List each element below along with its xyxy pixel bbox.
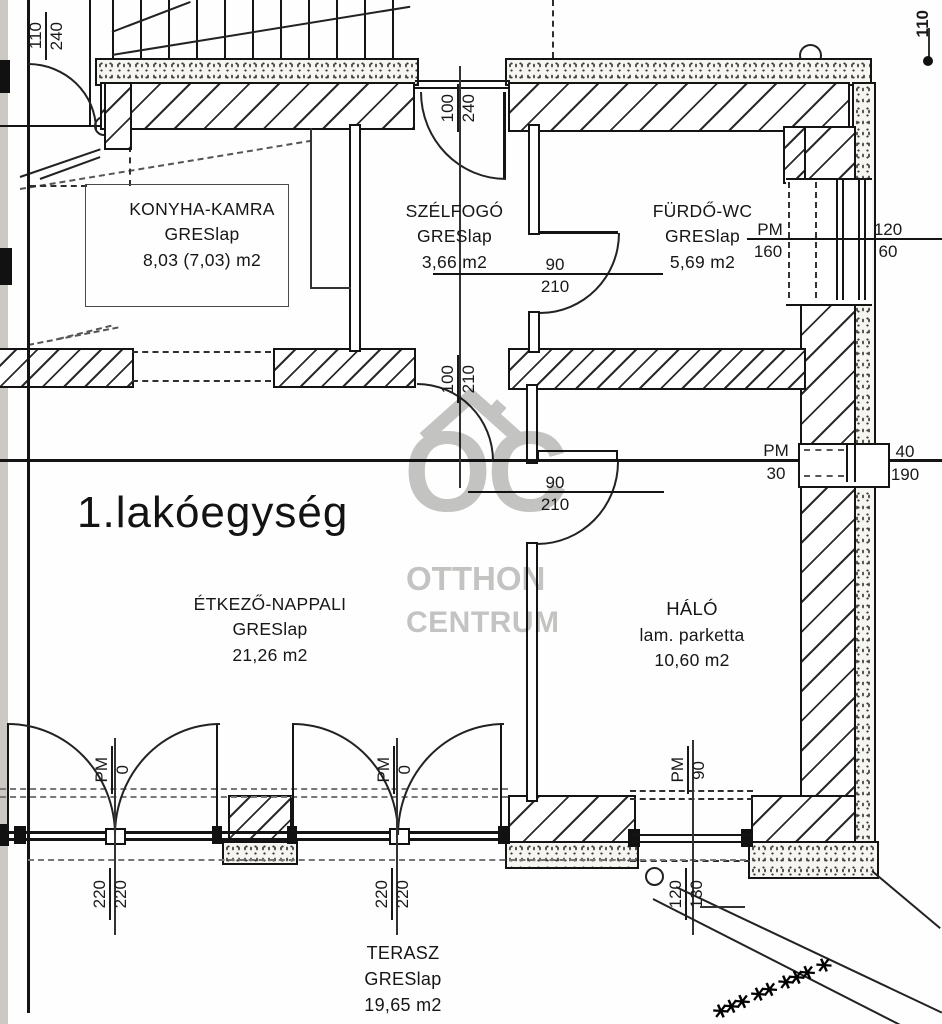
wall-top-left-corner: [104, 82, 132, 150]
room-label-konyha: KONYHA-KAMRA GRESlap 8,03 (7,03) m2: [98, 197, 306, 273]
stair-dash-line: [552, 0, 554, 58]
wall-bottom-right-of-window: [751, 795, 856, 847]
wall-szelfogo-bath-upper: [528, 124, 540, 235]
stair-walkline: [20, 140, 312, 190]
dim-bath-door-w: 90: [538, 255, 572, 275]
scan-edge: [0, 0, 8, 1024]
dim-corr-window-w: 40: [890, 442, 920, 462]
kitchen-dash-v: [129, 146, 131, 186]
wall-kitchen-south-mid: [273, 348, 416, 388]
entry-threshold-1: [415, 80, 510, 82]
scan-edge-block-2: [0, 248, 12, 285]
room-label-furdo: FÜRDŐ-WC GRESlap 5,69 m2: [635, 199, 770, 275]
wall-top-left: [100, 82, 415, 130]
wall-bottom-insulation-right: [748, 841, 879, 879]
dim-bedroom-door-h: 210: [533, 495, 577, 515]
wall-bottom-left-of-window: [508, 795, 636, 847]
wall-bath-step: [783, 126, 806, 184]
room-label-halo: HÁLÓ lam. parketta 10,60 m2: [612, 596, 772, 674]
dim-corr-window-pm: PM: [756, 441, 796, 461]
bath-window: [786, 178, 872, 306]
wall-bottom-insulation-left: [505, 841, 639, 869]
stair-door-swing: [28, 63, 97, 130]
terrace-pier-insulation: [222, 841, 298, 865]
path-connector: [700, 906, 745, 908]
dim-bedroom-window-pm: PM90: [668, 746, 708, 794]
dim-corr-window-h: 190: [884, 465, 926, 485]
dim-terrace-door1-pm: PM0: [92, 746, 132, 794]
unit-title: 1.lakóegység: [77, 488, 348, 538]
wall-bath-south: [508, 348, 806, 390]
scan-edge-block-1: [0, 60, 10, 93]
room-label-etkezo: ÉTKEZŐ-NAPPALI GRESlap 21,26 m2: [175, 592, 365, 668]
dim-bath-door-h: 210: [533, 277, 577, 297]
wall-kitchen-south-left: [0, 348, 134, 388]
dim-szelfogo-door: 100210: [438, 355, 478, 403]
shrub-row: *** ** *** *: [709, 890, 942, 1024]
dim-terrace-door2-pm: PM0: [374, 746, 414, 794]
wall-szelfogo-bath-stub: [528, 311, 540, 353]
dim-terrace-door2-size: 220220: [372, 868, 412, 920]
dim-bedroom-window-size: 120130: [666, 868, 706, 920]
dim-bath-window-w: 120: [868, 220, 908, 240]
stair-stringer-1: [20, 148, 101, 178]
wall-bedroom-west: [526, 542, 538, 802]
corridor-window: [798, 443, 890, 488]
kitchen-counter-h: [310, 287, 351, 289]
dim-entry-door: 100240: [438, 84, 478, 132]
room-label-szelfogo: SZÉLFOGÓ GRESlap 3,66 m2: [392, 199, 517, 275]
drain-circle-bottom: [645, 867, 664, 886]
passthrough-dash-top: [132, 351, 271, 353]
terrace-sill-2: [8, 838, 510, 841]
terrace-edge: [28, 859, 746, 861]
kitchen-dash-h: [30, 185, 87, 187]
room-label-terasz: TERASZ GRESlap 19,65 m2: [328, 940, 478, 1018]
halo-door-head: [537, 450, 618, 452]
main-vertical-line: [27, 0, 30, 1013]
dim-stair-door: 110240: [26, 12, 66, 60]
dim-bath-window-h: 60: [872, 242, 904, 262]
wall-top-right: [508, 82, 850, 132]
dim-terrace-door1-size: 220220: [90, 868, 130, 920]
understair-dash-2: [58, 325, 112, 340]
entry-door-leaf: [503, 92, 506, 178]
dim-corr-window-pmv: 30: [760, 464, 792, 484]
passthrough-dash-bottom: [132, 380, 271, 382]
dim-bedroom-door-w: 90: [538, 473, 572, 493]
floor-plan: 110240 100240 100210 110 90 210 90 210 P…: [0, 0, 942, 1024]
kitchen-counter-v: [310, 128, 312, 288]
wall-kitchen-szelfogo: [349, 124, 361, 352]
